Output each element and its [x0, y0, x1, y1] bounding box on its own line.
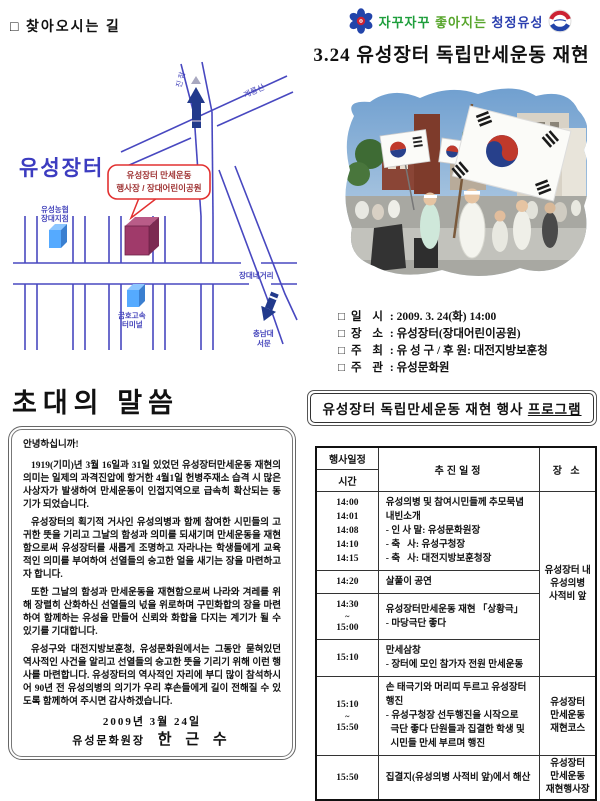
schedule-time-cell: 14:30~15:00	[316, 594, 378, 640]
map-illustration: 유성장터 만세운동 행사장 / 장대어린이공원 유성장터 진 잠 계룡산 유성농…	[5, 50, 300, 375]
event-info: □일 시 : 2009. 3. 24(화) 14:00 □장 소 : 유성장터(…	[338, 309, 548, 377]
invitation-letter: 안녕하십니까! 1919(기미)년 3월 16일과 31일 있었던 유성장터만세…	[8, 426, 296, 760]
letter-paragraph: 유성구와 대전지방보훈청, 유성문화원에서는 그동안 묻혀있던 역사적인 사건을…	[23, 644, 281, 709]
city-slogan: 자꾸자꾸 좋아지는 청정유성	[379, 12, 544, 31]
square-bullet-icon: □	[338, 328, 345, 340]
schedule-row: 14:0014:0114:0814:1014:15유성의병 및 참여시민들께 추…	[316, 492, 596, 571]
schedule-time-cell: 15:10	[316, 640, 378, 677]
map-label-nonghyup-2: 장대지점	[41, 213, 69, 223]
program-schedule-table: 행사일정 시간 추진일정 장 소 14:0014:0114:0814:1014:…	[315, 446, 597, 801]
letter-signature: 유성문화원장 한 근 수	[23, 734, 281, 748]
info-sep: :	[387, 345, 397, 357]
schedule-content-cell: 유성의병 및 참여시민들께 추모묵념내빈소개- 인 사 말: 유성문화원장- 축…	[378, 492, 540, 571]
south-arrow-icon	[256, 290, 282, 324]
letter-paragraph: 1919(기미)년 3월 16일과 31일 있었던 유성장터만세운동 재현의 의…	[23, 460, 281, 512]
together-badge-icon	[548, 9, 572, 33]
schedule-content-cell: 만세삼창- 장터에 모인 참가자 전원 만세운동	[378, 640, 540, 677]
letter-paragraph: 또한 그날의 함성과 만세운동을 재현함으로써 나라와 겨레를 위해 장렬히 산…	[23, 587, 281, 639]
schedule-content-cell: 살풀이 공연	[378, 571, 540, 594]
map-label-jangdae-crossing: 장대네거리	[239, 270, 274, 280]
map-label-chungnam-1: 충남대	[253, 328, 274, 338]
event-photo	[322, 78, 594, 306]
letter-greeting: 안녕하십니까!	[23, 439, 281, 452]
schedule-time-cell: 14:0014:0114:0814:1014:15	[316, 492, 378, 571]
slogan-part-3: 청정유성	[492, 15, 544, 30]
info-sep: :	[387, 328, 397, 340]
info-label: 주 관	[351, 362, 387, 374]
letter-paragraph: 유성장터의 획기적 거사인 유성의병과 함께 참여한 시민들의 고귀한 뜻을 기…	[23, 517, 281, 582]
map-label-nonghyup-1: 유성농협	[41, 204, 69, 214]
yuseong-emblem-icon	[348, 8, 374, 34]
square-bullet-icon: □	[338, 362, 345, 374]
callout-line1: 유성장터 만세운동	[127, 170, 192, 180]
info-sep: :	[387, 311, 397, 323]
header-schedule-label: 행사일정	[317, 448, 378, 469]
invitation-title: 초대의 말씀	[12, 381, 179, 420]
map-label-kumho-2: 터미널	[122, 319, 143, 329]
program-title-underlined: 프로그램	[528, 402, 582, 417]
info-value: 2009. 3. 24(화) 14:00	[397, 311, 497, 323]
event-info-row: □주 최 : 유 성 구 / 후 원: 대전지방보훈청	[338, 343, 548, 360]
slogan-part-2: 좋아지는	[435, 15, 487, 30]
callout-line2: 행사장 / 장대어린이공원	[116, 183, 201, 193]
info-label: 일 시	[351, 311, 387, 323]
letter-date: 2009년 3월 24일	[23, 716, 281, 729]
schedule-time-cell: 15:10~15:50	[316, 677, 378, 756]
signer-title: 유성문화원장	[72, 735, 145, 747]
info-label: 장 소	[351, 328, 387, 340]
page-title: 3.24 유성장터 독립만세운동 재현	[303, 40, 600, 67]
nonghyup-building-icon	[49, 224, 67, 248]
schedule-content-cell: 손 태극기와 머리띠 두르고 유성장터 행진- 유성구청장 선두행진을 시작으로…	[378, 677, 540, 756]
slogan-part-1: 자꾸자꾸	[379, 15, 431, 30]
kumho-terminal-icon	[127, 284, 145, 307]
map-label-gyeryongsan: 계룡산	[242, 81, 267, 99]
event-info-row: □일 시 : 2009. 3. 24(화) 14:00	[338, 309, 548, 326]
info-value: 유성장터(장대어린이공원)	[397, 328, 521, 340]
event-info-row: □주 관 : 유성문화원	[338, 360, 548, 377]
directions-title: □ 찾아오시는 길	[10, 16, 121, 36]
square-bullet-icon: □	[338, 311, 345, 323]
schedule-time-cell: 15:50	[316, 756, 378, 801]
event-info-row: □장 소 : 유성장터(장대어린이공원)	[338, 326, 548, 343]
info-sep: :	[387, 362, 397, 374]
info-value: 유 성 구 / 후 원: 대전지방보훈청	[397, 345, 548, 357]
square-bullet-icon: □	[338, 345, 345, 357]
header-agenda-label: 추진일정	[378, 447, 540, 492]
signer-name: 한 근 수	[158, 732, 232, 748]
reenactment-photo-illustration	[322, 78, 594, 306]
map-label-kumho-1: 금호고속	[118, 310, 146, 320]
schedule-header-row: 행사일정 시간 추진일정 장 소	[316, 447, 596, 492]
map-label-chungnam-2: 서문	[257, 338, 271, 348]
directions-map: 유성장터 만세운동 행사장 / 장대어린이공원 유성장터 진 잠 계룡산 유성농…	[5, 50, 300, 375]
header-time-column: 행사일정 시간	[316, 447, 378, 492]
schedule-row: 15:50집결지(유성의병 사적비 앞)에서 해산유성장터 만세운동 재현행사장	[316, 756, 596, 801]
schedule-content-cell: 유성장터만세운동 재현 「상황극」- 마당극단 좋다	[378, 594, 540, 640]
info-label: 주 최	[351, 345, 387, 357]
header-time-label: 시간	[317, 469, 378, 491]
header-place-label: 장 소	[540, 447, 596, 492]
schedule-time-cell: 14:20	[316, 571, 378, 594]
venue-building-icon	[125, 217, 159, 255]
venue-callout: 유성장터 만세운동 행사장 / 장대어린이공원	[108, 165, 210, 218]
schedule-place-cell: 유성장터 만세운동 재현코스	[540, 677, 596, 756]
schedule-row: 15:10~15:50손 태극기와 머리띠 두르고 유성장터 행진- 유성구청장…	[316, 677, 596, 756]
map-area-label: 유성장터	[19, 157, 104, 180]
schedule-place-cell: 유성장터 내 유성의병 사적비 앞	[540, 492, 596, 677]
header-logo-row: 자꾸자꾸 좋아지는 청정유성	[328, 6, 592, 36]
schedule-place-cell: 유성장터 만세운동 재현행사장	[540, 756, 596, 801]
program-title: 유성장터 독립만세운동 재현 행사	[322, 402, 527, 417]
info-value: 유성문화원	[397, 362, 450, 374]
schedule-content-cell: 집결지(유성의병 사적비 앞)에서 해산	[378, 756, 540, 801]
program-title-box: 유성장터 독립만세운동 재현 행사 프로그램	[307, 390, 597, 426]
map-label-jinjam: 진 잠	[173, 70, 187, 88]
flyer-page: { "header": { "slogan_1": "자꾸자꾸", "sloga…	[0, 0, 600, 768]
